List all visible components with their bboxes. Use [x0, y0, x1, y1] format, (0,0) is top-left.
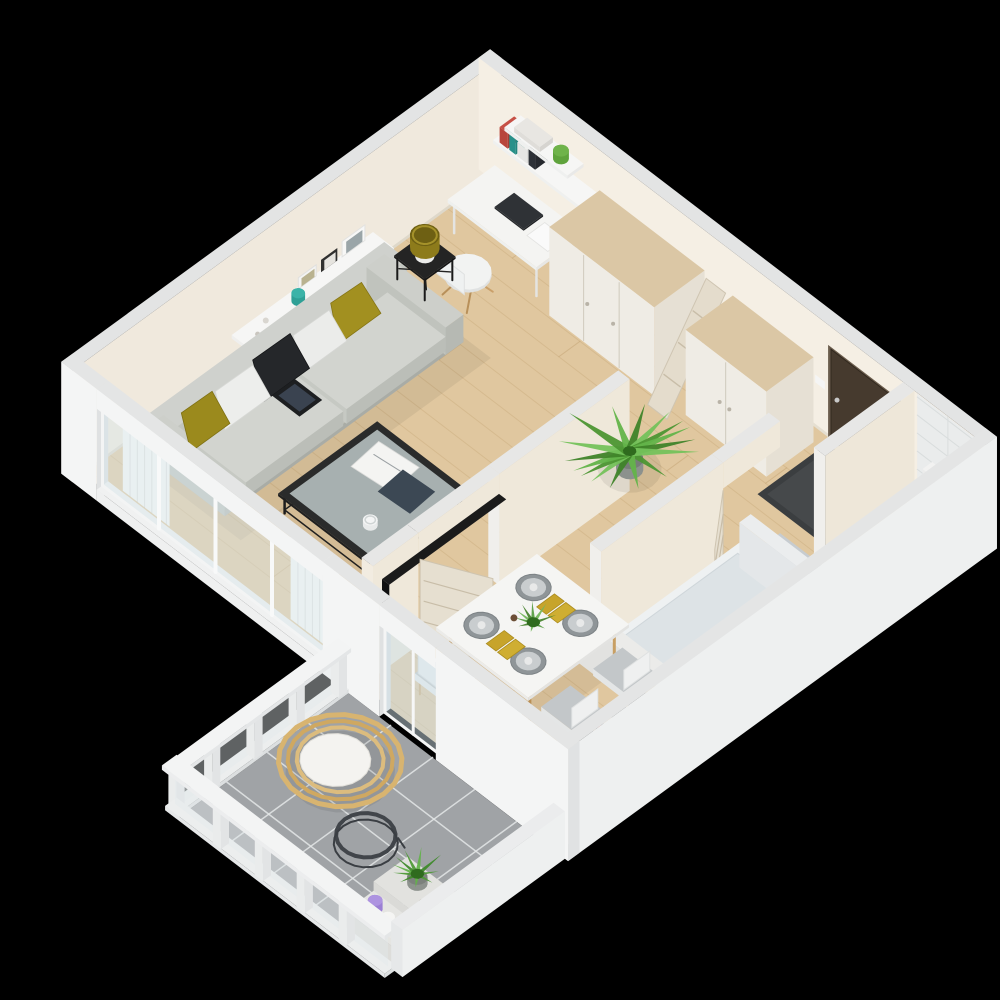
food [478, 621, 486, 629]
wardrobe-handle [727, 407, 731, 411]
pinecone [510, 614, 517, 621]
shelf-plant [553, 145, 569, 165]
hanging-chair-cushion [300, 734, 371, 787]
shelf-candle [263, 318, 269, 324]
apartment-3d-plan [0, 0, 1000, 1000]
food [524, 657, 532, 665]
wardrobe-handle [585, 302, 589, 306]
food [530, 583, 538, 591]
entry-door-handle [835, 398, 840, 403]
glass-cup [363, 514, 378, 530]
wardrobe-handle [718, 400, 722, 404]
floor-plan-render [0, 0, 1000, 1000]
food [576, 619, 584, 627]
wardrobe-handle [611, 322, 615, 326]
